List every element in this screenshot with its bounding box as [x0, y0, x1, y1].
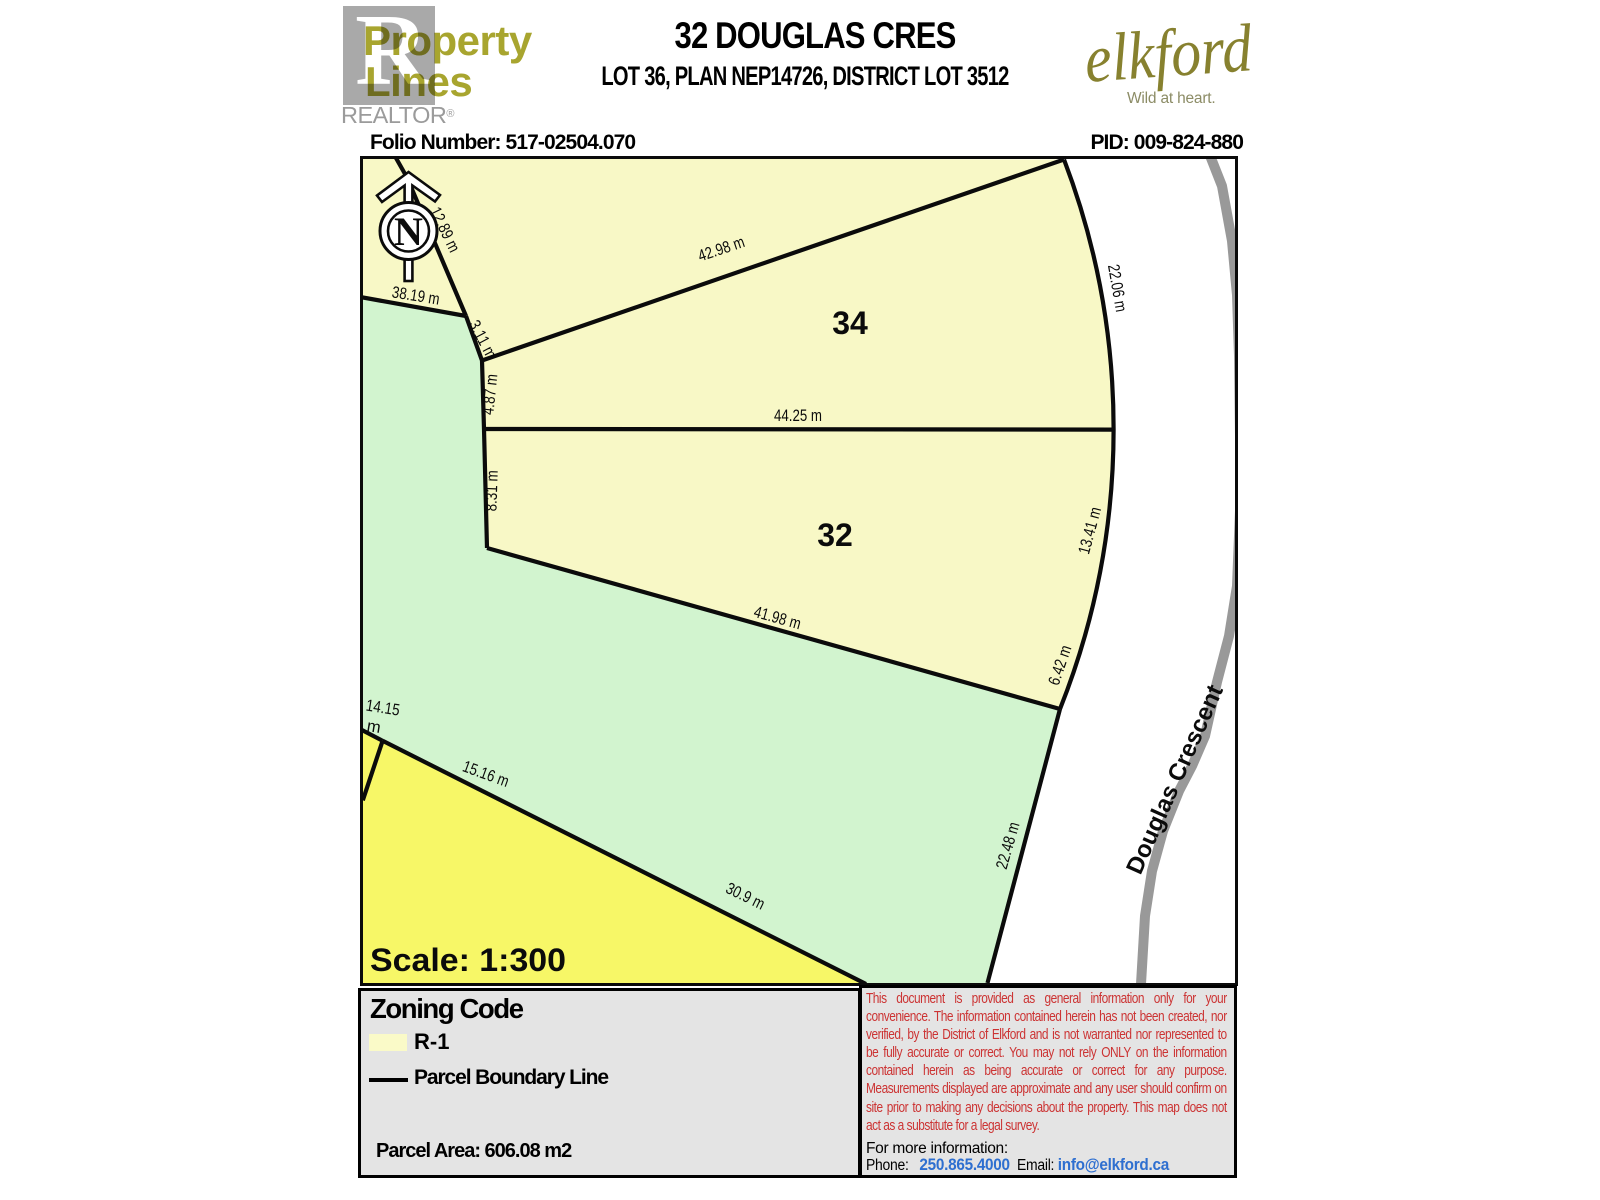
svg-text:34: 34 [832, 305, 868, 341]
svg-text:32: 32 [817, 517, 853, 553]
svg-text:N: N [394, 209, 423, 254]
svg-text:44.25 m: 44.25 m [774, 407, 822, 425]
svg-text:Scale: 1:300: Scale: 1:300 [370, 942, 566, 978]
svg-text:m: m [366, 717, 382, 737]
svg-text:8.31 m: 8.31 m [482, 470, 501, 512]
